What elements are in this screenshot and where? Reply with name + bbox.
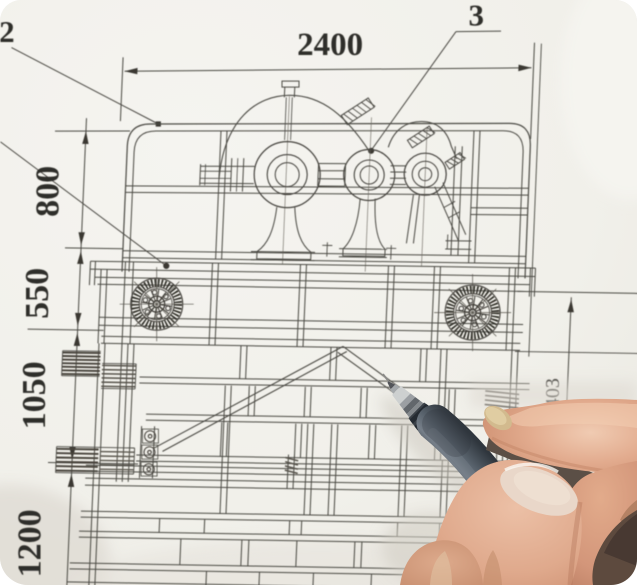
svg-text:3: 3 [468,0,484,33]
svg-text:550: 550 [19,268,56,319]
svg-text:1200: 1200 [12,509,49,577]
svg-text:1050: 1050 [16,361,53,429]
svg-text:2: 2 [0,14,15,49]
svg-text:800: 800 [29,166,66,217]
svg-text:2400: 2400 [297,27,363,63]
